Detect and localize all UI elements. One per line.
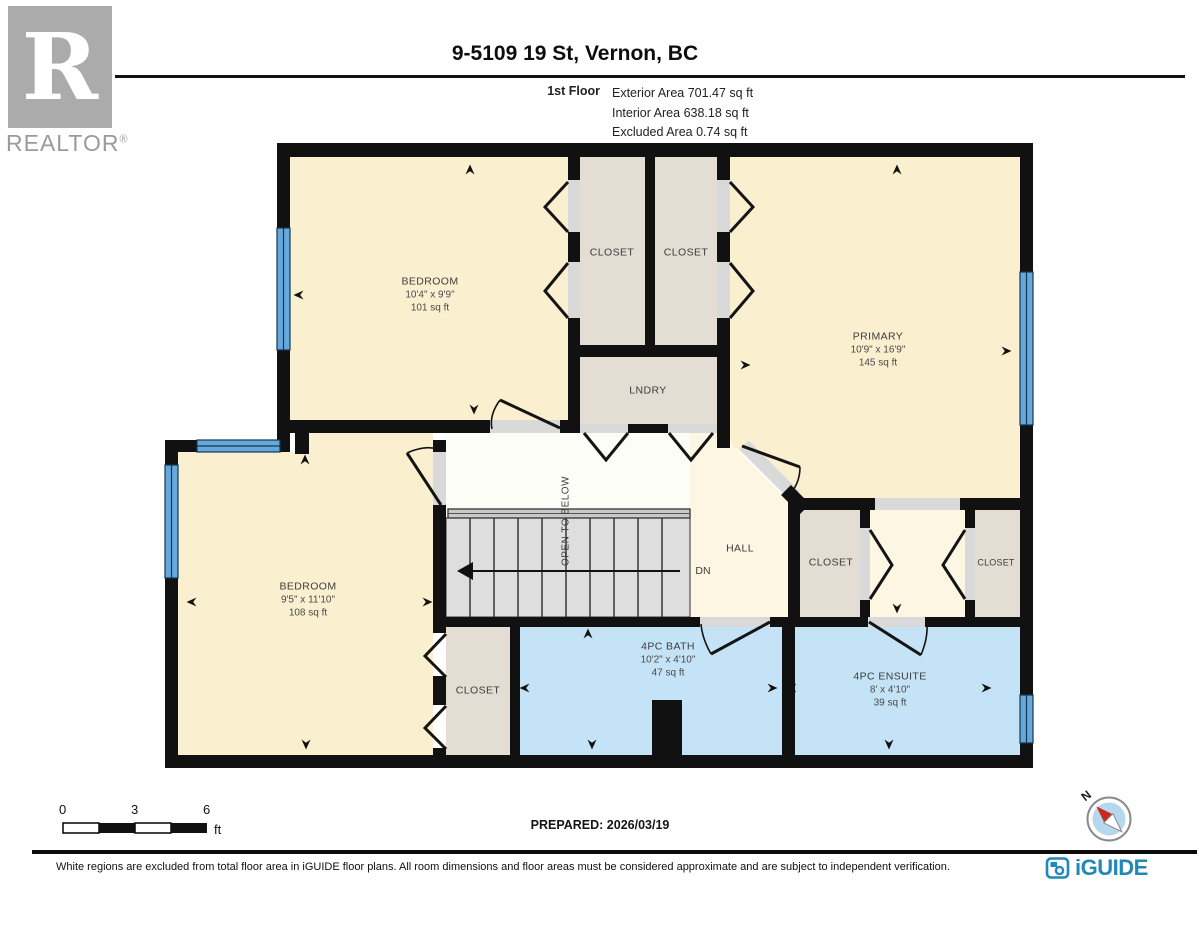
stairs-down-label: DN xyxy=(695,565,710,577)
room-label-bath: 4PC BATH 10'2" x 4'10" 47 sq ft xyxy=(641,641,696,680)
floorplan-drawing xyxy=(0,0,1200,927)
window xyxy=(277,228,290,350)
svg-text:0: 0 xyxy=(59,802,66,817)
svg-text:3: 3 xyxy=(131,802,138,817)
room-label-primary: PRIMARY 10'9" x 16'9" 145 sq ft xyxy=(851,331,906,370)
room-label-closet-bedroom: CLOSET xyxy=(456,685,500,698)
room-label-hall: HALL xyxy=(726,543,754,556)
room-label-closet-primary: CLOSET xyxy=(977,557,1014,570)
iguide-logo: iGUIDE xyxy=(1045,855,1148,881)
svg-text:6: 6 xyxy=(203,802,210,817)
footer-divider xyxy=(32,850,1197,854)
compass-n-label: N xyxy=(1079,788,1094,804)
room-label-bedroom-top: BEDROOM 10'4" x 9'9" 101 sq ft xyxy=(401,276,458,315)
room-label-bedroom-left: BEDROOM 9'5" x 11'10" 108 sq ft xyxy=(279,581,336,620)
room-label-closet-a: CLOSET xyxy=(590,247,634,260)
window xyxy=(1020,272,1033,425)
compass: N xyxy=(1072,786,1148,850)
window xyxy=(165,465,178,578)
disclaimer-text: White regions are excluded from total fl… xyxy=(56,861,956,873)
scale-unit: ft xyxy=(214,822,222,837)
open-to-below-label: OPEN TO BELOW xyxy=(561,476,572,566)
room-label-laundry: LNDRY xyxy=(629,385,666,398)
room-label-closet-hall: CLOSET xyxy=(809,557,853,570)
floorplan-page: R REALTOR® 9-5109 19 St, Vernon, BC 1st … xyxy=(0,0,1200,927)
window xyxy=(1020,695,1033,743)
prepared-date: PREPARED: 2026/03/19 xyxy=(400,818,800,832)
scale-bar: 0 3 6 ft xyxy=(57,798,237,838)
iguide-camera-icon xyxy=(1045,855,1071,881)
window xyxy=(197,440,280,452)
room-label-ensuite: 4PC ENSUITE 8' x 4'10" 39 sq ft xyxy=(853,671,926,710)
room-label-closet-b: CLOSET xyxy=(664,247,708,260)
iguide-wordmark: iGUIDE xyxy=(1075,855,1148,881)
